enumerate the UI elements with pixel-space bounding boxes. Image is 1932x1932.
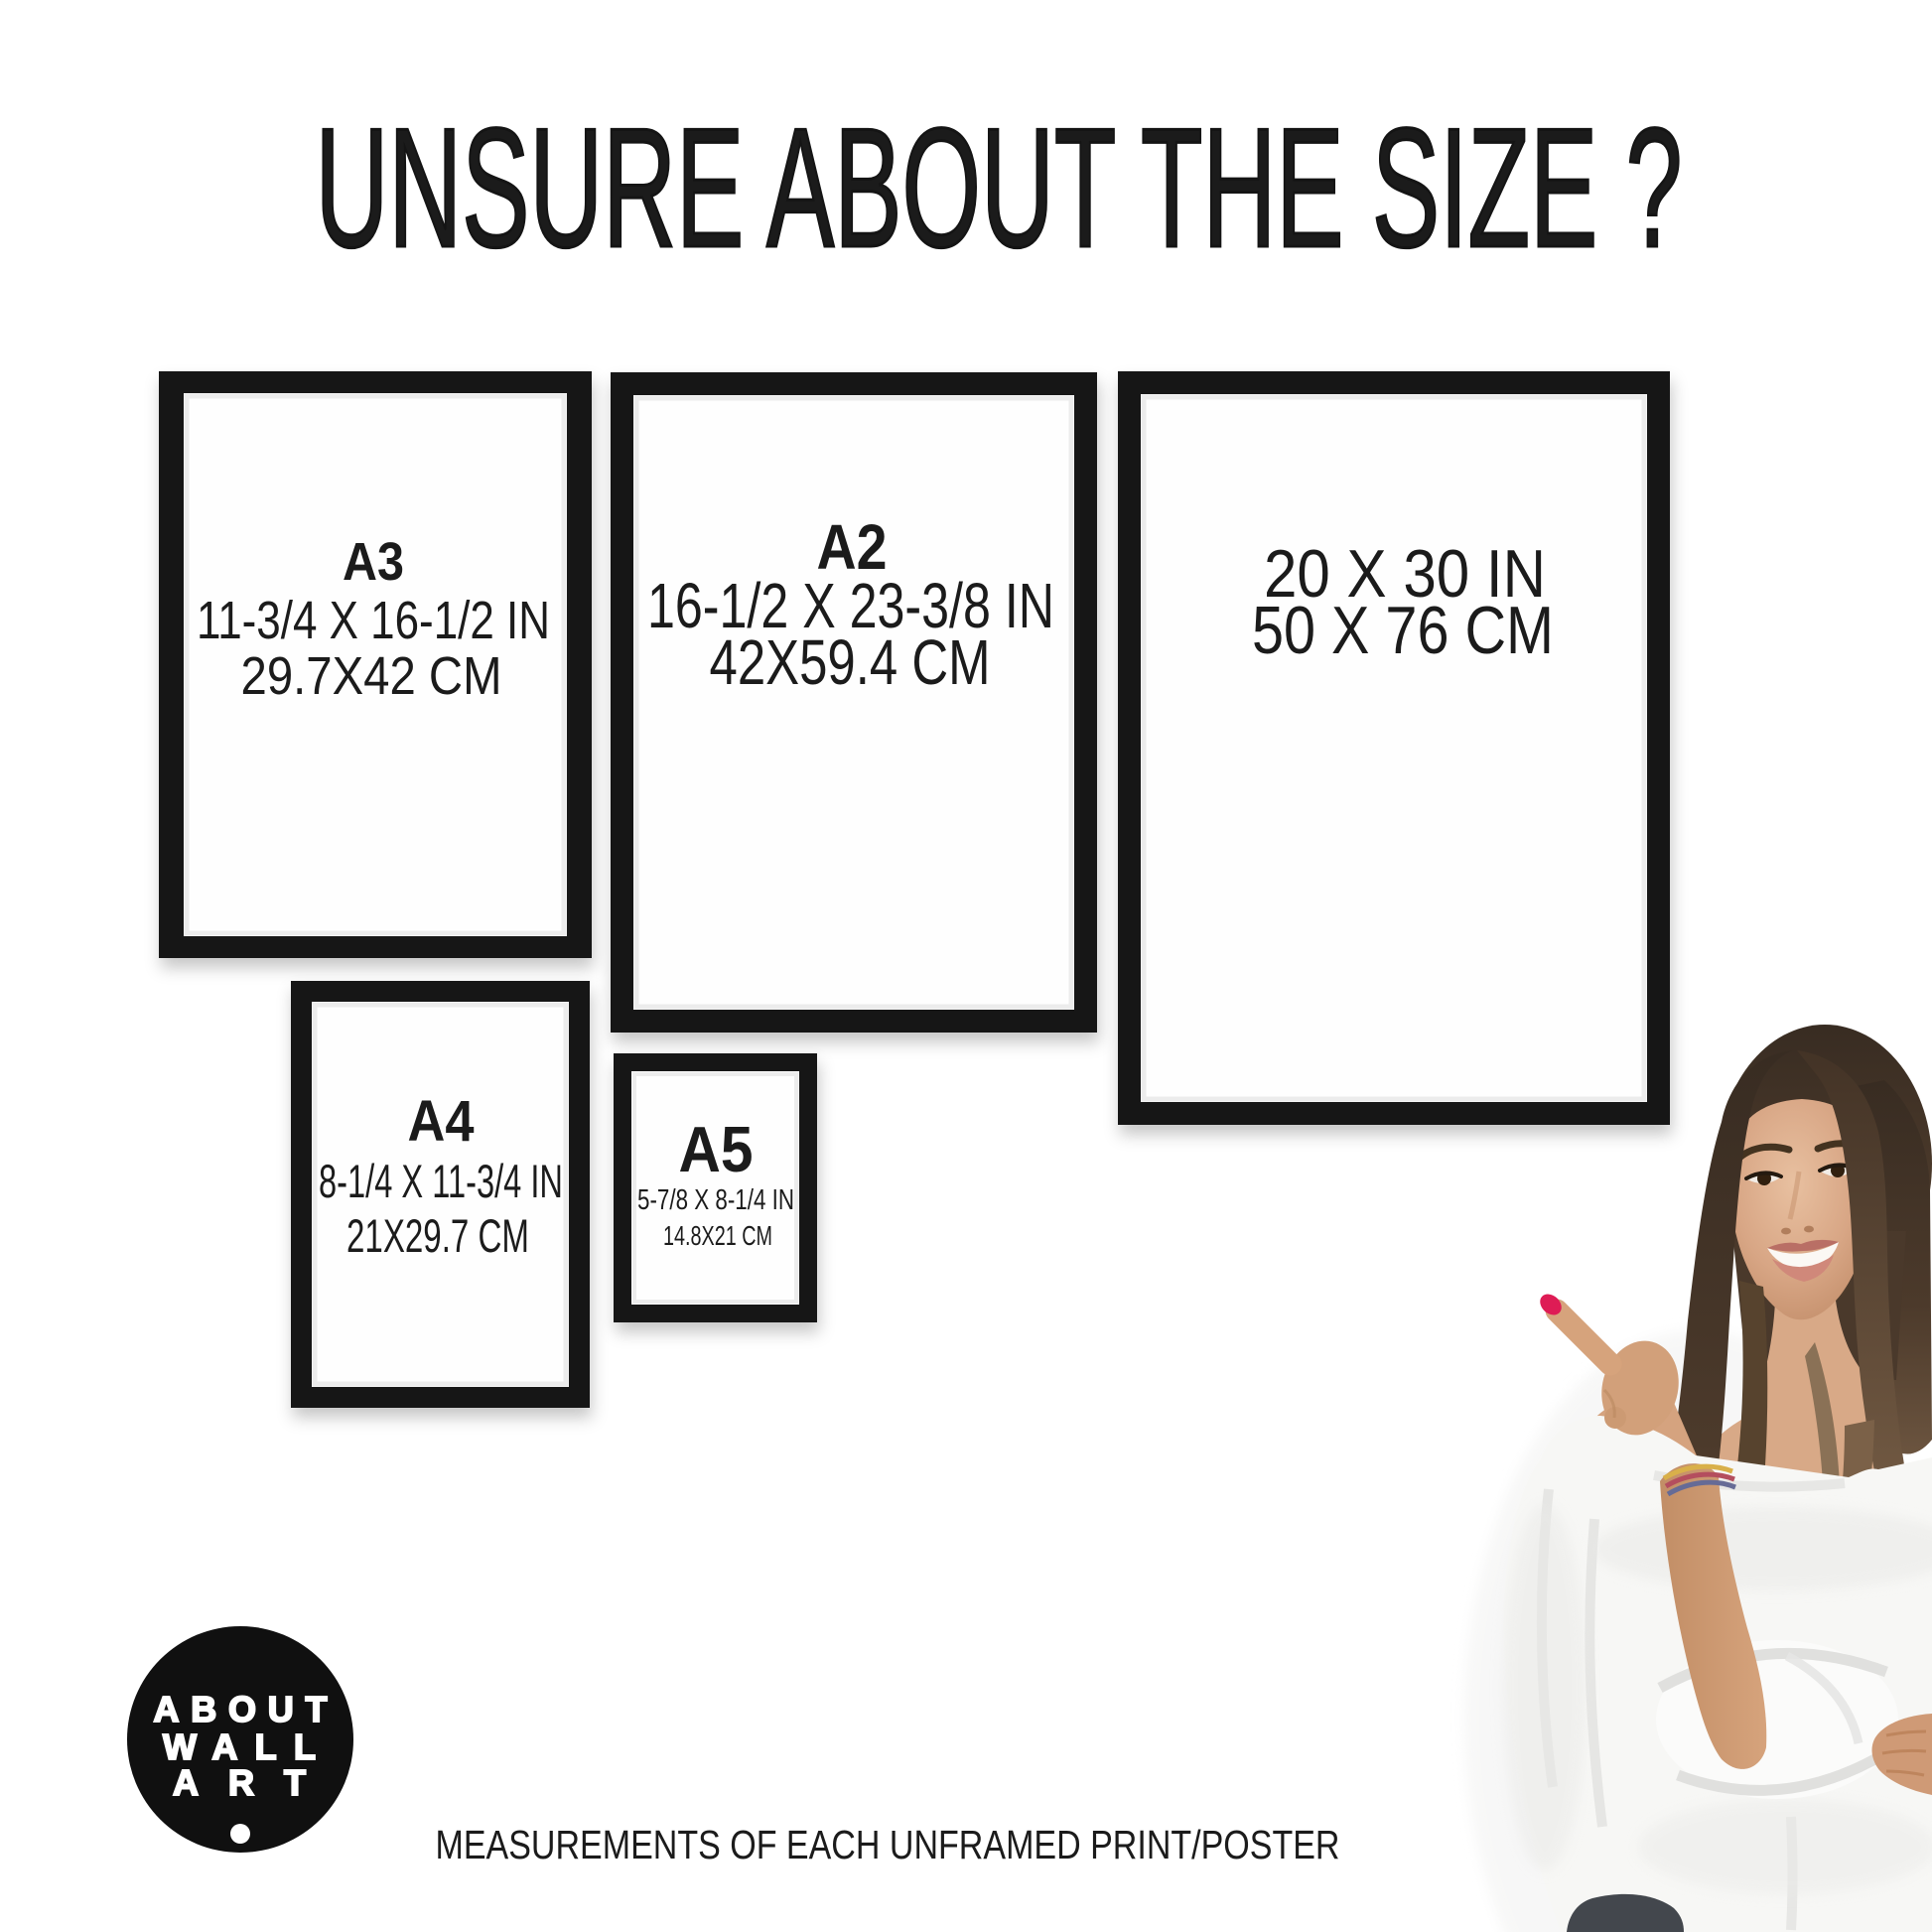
svg-text:ART: ART	[173, 1762, 306, 1803]
svg-text:21X29.7 CM: 21X29.7 CM	[346, 1209, 529, 1262]
svg-text:50 X 76 CM: 50 X 76 CM	[1252, 593, 1554, 668]
svg-text:A3: A3	[343, 532, 404, 592]
svg-text:42X59.4 CM: 42X59.4 CM	[710, 626, 991, 698]
svg-text:14.8X21 CM: 14.8X21 CM	[663, 1220, 772, 1251]
svg-text:UNSURE ABOUT THE SIZE ?: UNSURE ABOUT THE SIZE ?	[316, 93, 1683, 283]
svg-text:29.7X42 CM: 29.7X42 CM	[241, 646, 502, 706]
svg-text:A4: A4	[408, 1089, 475, 1154]
svg-text:MEASUREMENTS OF EACH UNFRAMED: MEASUREMENTS OF EACH UNFRAMED PRINT/POST…	[436, 1822, 1340, 1867]
svg-text:8-1/4 X 11-3/4 IN: 8-1/4 X 11-3/4 IN	[319, 1155, 563, 1207]
svg-text:5-7/8 X 8-1/4 IN: 5-7/8 X 8-1/4 IN	[637, 1184, 794, 1216]
svg-text:11-3/4 X 16-1/2 IN: 11-3/4 X 16-1/2 IN	[197, 591, 550, 650]
svg-text:A5: A5	[679, 1113, 754, 1185]
